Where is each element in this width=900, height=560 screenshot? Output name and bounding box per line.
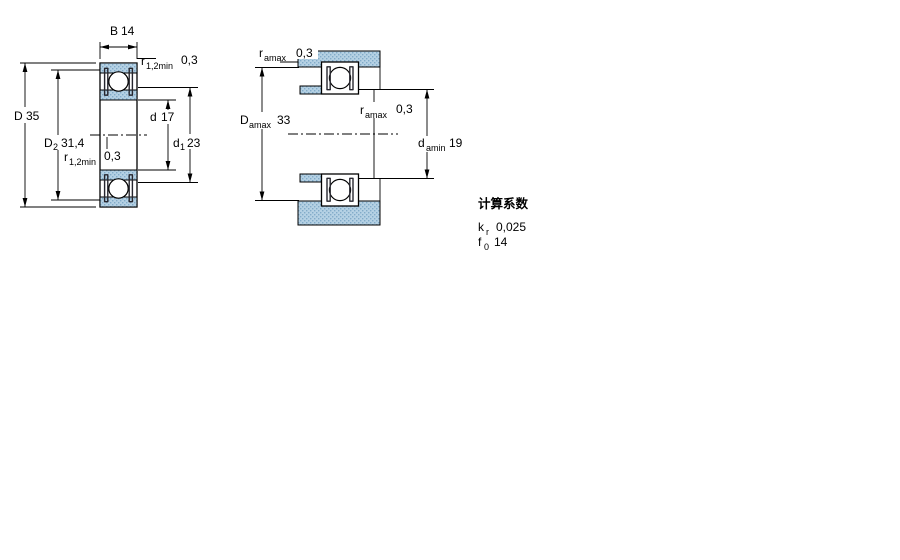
- calculation-factors-block: 计算系数 k r 0,025 f 0 14: [478, 196, 529, 252]
- bearing-section-diagram: B 14 D 35 D 2 31,4 d 17 d 1 23 r 1,2min …: [12, 24, 203, 207]
- ball-top: [329, 67, 350, 88]
- dim-r-bottom-subscript: 1,2min: [69, 157, 96, 167]
- factor-f0-symbol: f: [478, 235, 482, 249]
- dim-d-value: 17: [161, 110, 175, 124]
- shaft-shoulder-bottom: [300, 174, 322, 182]
- calculation-factors-title: 计算系数: [478, 196, 529, 211]
- dim-ra-top-subscript: amax: [264, 53, 287, 63]
- dim-D-symbol: D: [14, 109, 23, 123]
- ball-top: [109, 72, 128, 91]
- dim-D2-subscript: 2: [53, 142, 58, 152]
- dim-ra-mid-value: 0,3: [396, 102, 413, 116]
- dim-d1-symbol: d: [173, 136, 180, 150]
- factor-kr-value: 0,025: [496, 220, 526, 234]
- ball-bottom: [109, 179, 128, 198]
- dim-d1-subscript: 1: [180, 142, 185, 152]
- B-extension-lines: [100, 42, 137, 59]
- ball-bottom: [329, 179, 350, 200]
- dim-ra-mid-symbol: r: [360, 103, 364, 117]
- dim-ra-mid-subscript: amax: [365, 110, 388, 120]
- dim-B-symbol: B: [110, 24, 118, 38]
- dim-r-top-value: 0,3: [181, 53, 198, 67]
- dim-ra-top-value: 0,3: [296, 46, 313, 60]
- factor-f0-value: 14: [494, 235, 508, 249]
- dim-Da-symbol: D: [240, 113, 249, 127]
- dim-D2-value: 31,4: [61, 136, 85, 150]
- dim-r-top-symbol: r: [141, 54, 145, 68]
- dim-Da-value: 33: [277, 113, 291, 127]
- dim-ra-top-symbol: r: [259, 46, 263, 60]
- dim-da-symbol: d: [418, 136, 425, 150]
- dim-Da-subscript: amax: [249, 120, 272, 130]
- factor-kr-symbol: k: [478, 220, 485, 234]
- factor-f0-subscript: 0: [484, 242, 489, 252]
- dim-d1-value: 23: [187, 136, 201, 150]
- dim-da-value: 19: [449, 136, 463, 150]
- bearing-datasheet-drawing: B 14 D 35 D 2 31,4 d 17 d 1 23 r 1,2min …: [0, 0, 900, 560]
- dim-r-bottom-value: 0,3: [104, 149, 121, 163]
- shaft-shoulder-top: [300, 86, 322, 94]
- dim-B-value: 14: [121, 24, 135, 38]
- drawing-canvas: B 14 D 35 D 2 31,4 d 17 d 1 23 r 1,2min …: [0, 0, 900, 560]
- dim-D-value: 35: [26, 109, 40, 123]
- mounting-abutment-diagram: r amax 0,3 D amax 33 r amax 0,3 d amin 1…: [237, 46, 465, 225]
- dim-r-top-subscript: 1,2min: [146, 61, 173, 71]
- dim-r-bottom-symbol: r: [64, 150, 68, 164]
- dim-d-symbol: d: [150, 110, 157, 124]
- factor-kr-subscript: r: [486, 227, 489, 237]
- dim-da-subscript: amin: [426, 143, 446, 153]
- dim-D2-symbol: D: [44, 136, 53, 150]
